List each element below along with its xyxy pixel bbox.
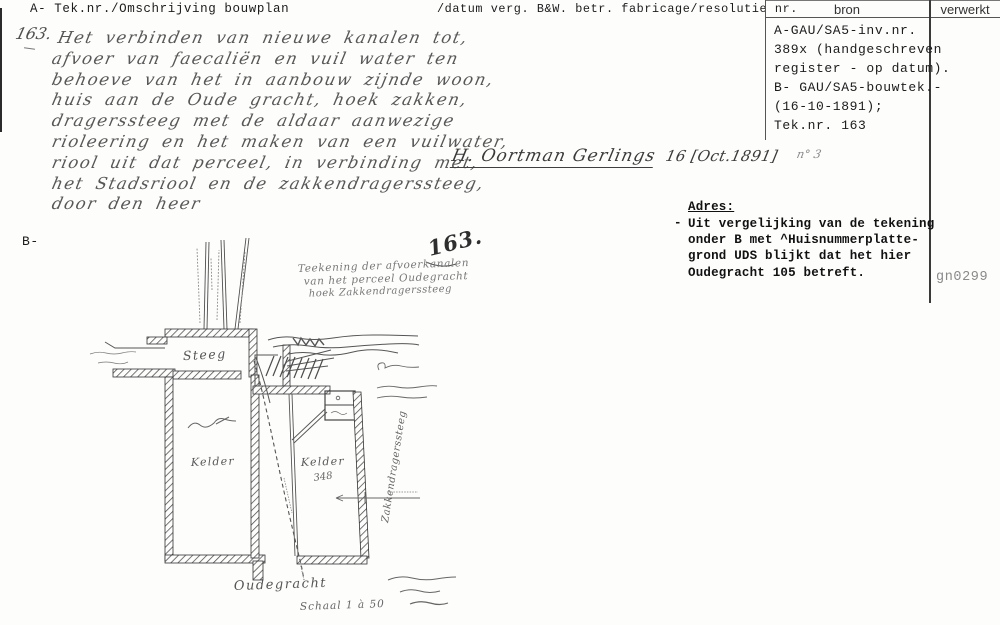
- dimension-line: [336, 492, 420, 504]
- description-number: 163.: [14, 24, 54, 43]
- signature-date: 16 [Oct.1891]: [665, 147, 781, 165]
- privaat-scribble: [331, 412, 347, 415]
- label-zakkendragerssteeg: Zakkendragerssteeg: [380, 410, 409, 524]
- adres-line: grond UDS blijkt dat het hier: [688, 248, 934, 264]
- adres-bullet: -: [674, 216, 682, 230]
- wall-channel-top: [165, 329, 253, 337]
- header-col-a: A- Tek.nr./Omschrijving bouwplan: [30, 2, 289, 16]
- wall-canal-entry-bottom: [113, 369, 175, 377]
- illegible-canal-note: [90, 352, 136, 364]
- signature-name: H. Oortman Gerlings: [450, 146, 658, 168]
- bron-source-text: A-GAU/SA5-inv.nr. 389x (handgeschreven r…: [774, 21, 950, 135]
- wall-left-room-bottom: [165, 555, 265, 563]
- privaat-box: [325, 391, 355, 420]
- illegible-signature-block: [388, 577, 456, 605]
- wall-connect: [253, 386, 330, 394]
- label-kelder-left: Kelder: [190, 454, 235, 469]
- label-oudegracht: Oudegracht: [234, 576, 328, 594]
- table-header-rule: [765, 17, 1000, 18]
- bron-line: 389x (handgeschreven: [774, 40, 950, 59]
- description-line: behoeve van het in aanbouw zijnde woon,: [50, 70, 511, 91]
- header-col-bron: bron: [765, 2, 929, 17]
- description-line: Het verbinden van nieuwe kanalen tot,: [50, 28, 511, 49]
- bron-line: (16-10-1891);: [774, 97, 950, 116]
- signature-line: H. Oortman Gerlings 16 [Oct.1891] n° 3: [452, 146, 821, 168]
- bron-line: A-GAU/SA5-inv.nr.: [774, 21, 950, 40]
- bouwtekening-plan: 163. Teekening der afvoerkanalen van het…: [88, 228, 502, 625]
- adres-text: Uit vergelijking van de tekening onder B…: [688, 216, 934, 281]
- privaat-mark: [336, 396, 340, 400]
- header-col-verwerkt: verwerkt: [930, 2, 1000, 17]
- description-line: dragerssteeg met de aldaar aanwezige: [50, 111, 511, 132]
- signature-note: n° 3: [796, 147, 823, 161]
- adres-line: Oudegracht 105 betreft.: [688, 265, 934, 281]
- number-flourish: [24, 47, 35, 50]
- adres-heading: Adres:: [688, 200, 734, 214]
- wall-channel-bottom: [173, 371, 241, 379]
- description-line: riool uit dat perceel, in verbinding met…: [50, 153, 511, 174]
- description-line: huis aan de Oude gracht, hoek zakken,: [50, 90, 511, 111]
- adres-line: onder B met ^Huisnummerplatte-: [688, 232, 934, 248]
- inflow-pipes: [204, 238, 249, 329]
- drawing-number: 163.: [425, 228, 485, 261]
- bron-line: register - op datum).: [774, 59, 950, 78]
- diagonal-branch-pipe: [292, 409, 327, 443]
- wall-left-room-right: [251, 375, 259, 558]
- header-col-datum: /datum verg. B&W. betr. fabricage/resolu…: [437, 2, 798, 16]
- label-kelder-right-number: 348: [313, 470, 333, 484]
- section-b-label: B-: [22, 234, 39, 249]
- label-steeg: Steeg: [182, 346, 227, 363]
- illegible-street-annotation: [377, 363, 437, 398]
- wall-channel-right: [249, 329, 257, 377]
- description-line: door den heer: [50, 194, 511, 215]
- bron-line: Tek.nr. 163: [774, 116, 950, 135]
- verwerkt-code: gn0299: [936, 270, 988, 285]
- adres-line: Uit vergelijking van de tekening: [688, 216, 934, 232]
- scan-edge-line: [0, 8, 2, 132]
- drawing-title: Teekening der afvoerkanalen van het perc…: [298, 257, 470, 300]
- description-line: afvoer van faecaliën en vuil water ten: [50, 49, 511, 70]
- wall-right-room-bottom: [297, 556, 367, 564]
- bron-line: B- GAU/SA5-bouwtek.-: [774, 78, 950, 97]
- illegible-room-scribble: [188, 417, 236, 428]
- wall-right-room-right: [353, 392, 369, 558]
- table-top-rule: [765, 0, 1000, 1]
- description-line: rioleering en het maken van een vuilwate…: [50, 132, 511, 153]
- bron-left-rule: [765, 0, 766, 140]
- wall-left-room-left: [165, 377, 173, 561]
- description-text: Het verbinden van nieuwe kanalen tot, af…: [52, 28, 508, 215]
- description-line: het Stadsriool en de zakkendragerssteeg,: [50, 174, 511, 195]
- label-kelder-right: Kelder: [300, 454, 345, 469]
- wall-channel-left-step: [147, 337, 167, 344]
- label-scale: Schaal 1 à 50: [300, 598, 385, 613]
